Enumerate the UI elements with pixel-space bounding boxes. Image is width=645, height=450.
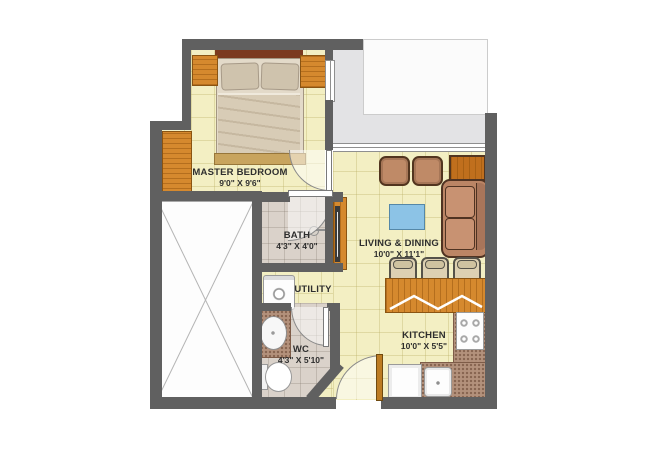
nightstand xyxy=(300,55,326,88)
wall xyxy=(255,192,290,202)
pillow xyxy=(221,62,260,90)
blanket xyxy=(218,93,300,155)
room-name: KITCHEN xyxy=(401,330,447,341)
sofa-seat xyxy=(445,186,475,218)
bedroom-door xyxy=(326,150,332,192)
room-label-kitchen: KITCHEN 10'0" X 5'5" xyxy=(401,330,447,352)
room-label-living-dining: LIVING & DINING 10'0" X 11'1" xyxy=(359,238,439,260)
balcony xyxy=(333,50,364,113)
room-label-bath: BATH 4'3" X 4'0" xyxy=(276,230,317,252)
wall xyxy=(150,121,162,409)
wall xyxy=(325,100,333,150)
double-bed xyxy=(216,58,304,156)
pouf xyxy=(379,156,410,186)
sofa-seat xyxy=(445,218,475,250)
toilet-bowl xyxy=(265,362,292,392)
void-shaft xyxy=(157,201,254,399)
sofa xyxy=(441,179,489,258)
wc-door xyxy=(323,307,329,347)
wall xyxy=(325,48,333,60)
wall xyxy=(381,397,497,409)
entrance-door xyxy=(376,354,383,401)
room-dim: 4'3" X 4'0" xyxy=(276,241,317,251)
wall xyxy=(182,39,191,130)
tv xyxy=(335,206,340,262)
balcony xyxy=(333,113,485,143)
room-dim: 10'0" X 11'1" xyxy=(359,249,439,259)
wall xyxy=(150,191,262,201)
room-dim: 4'3" X 5'10" xyxy=(278,355,324,365)
pillow xyxy=(261,62,300,90)
room-name: LIVING & DINING xyxy=(359,238,439,249)
bath-door xyxy=(288,190,333,197)
floor-plan: MASTER BEDROOM 9'0" X 9'6" BATH 4'3" X 4… xyxy=(0,0,645,450)
room-label-wc: WC 4'3" X 5'10" xyxy=(278,344,324,366)
nightstand xyxy=(192,55,218,86)
living-window xyxy=(333,143,485,152)
room-label-master-bedroom: MASTER BEDROOM 9'0" X 9'6" xyxy=(192,167,287,189)
room-name: UTILITY xyxy=(294,284,331,295)
room-label-utility: UTILITY xyxy=(294,284,331,295)
wall xyxy=(182,39,363,50)
wall xyxy=(252,303,291,311)
hob xyxy=(456,312,484,350)
counter-zigzag-icon xyxy=(386,293,484,311)
room-name: MASTER BEDROOM xyxy=(192,167,287,178)
wardrobe xyxy=(162,131,192,195)
open-terrace xyxy=(363,39,488,115)
room-name: WC xyxy=(278,344,324,355)
wall xyxy=(252,263,343,272)
pouf xyxy=(412,156,443,186)
room-name: BATH xyxy=(276,230,317,241)
breakfast-counter xyxy=(385,278,487,313)
wall xyxy=(330,311,340,369)
side-table xyxy=(449,155,486,181)
kitchen-sink xyxy=(424,367,452,397)
void-x-icon xyxy=(158,202,253,398)
bedroom-window xyxy=(325,60,335,102)
wall xyxy=(485,113,497,409)
room-dim: 10'0" X 5'5" xyxy=(401,341,447,351)
refrigerator xyxy=(388,364,422,400)
wall xyxy=(150,397,336,409)
coffee-table xyxy=(389,204,425,230)
wall xyxy=(252,191,262,397)
room-dim: 9'0" X 9'6" xyxy=(192,178,287,188)
wall xyxy=(325,190,333,272)
